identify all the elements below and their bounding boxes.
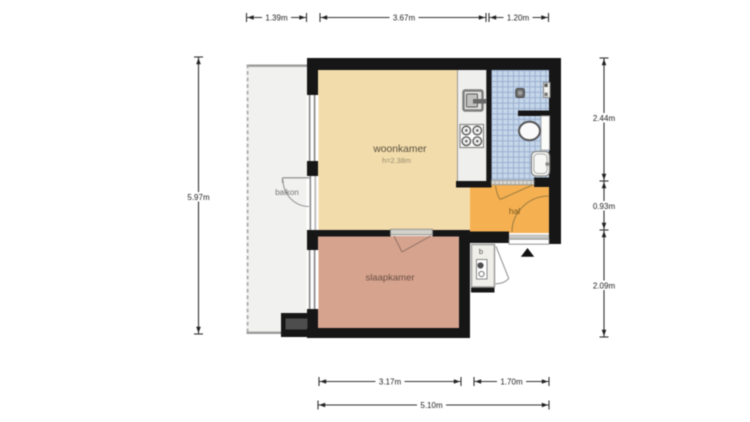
- svg-text:b: b: [479, 247, 483, 256]
- svg-text:0.93m: 0.93m: [593, 202, 616, 211]
- svg-text:2.44m: 2.44m: [593, 114, 616, 123]
- svg-text:5.97m: 5.97m: [187, 193, 210, 202]
- svg-text:slaapkamer: slaapkamer: [365, 273, 414, 284]
- svg-text:2.09m: 2.09m: [593, 282, 616, 291]
- svg-text:1.39m: 1.39m: [265, 13, 288, 22]
- svg-text:3.17m: 3.17m: [379, 377, 402, 386]
- svg-text:1.70m: 1.70m: [500, 377, 523, 386]
- svg-text:hal: hal: [509, 206, 520, 216]
- svg-text:1.20m: 1.20m: [507, 13, 530, 22]
- svg-text:3.67m: 3.67m: [393, 13, 416, 22]
- svg-text:h=2.38m: h=2.38m: [382, 156, 411, 165]
- svg-text:5.10m: 5.10m: [420, 401, 443, 410]
- svg-text:woonkamer: woonkamer: [372, 144, 427, 155]
- svg-text:balkon: balkon: [275, 188, 299, 197]
